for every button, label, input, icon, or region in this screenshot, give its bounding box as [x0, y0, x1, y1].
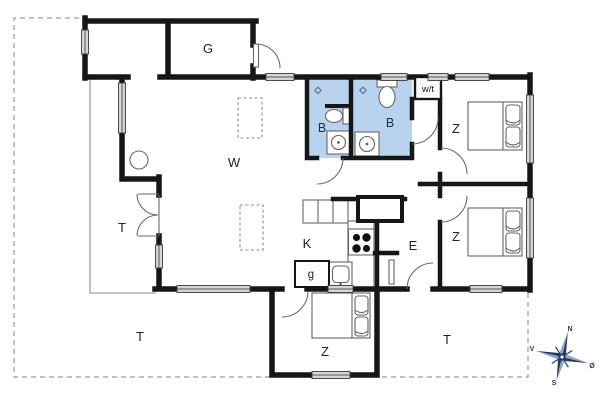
bed-sw	[312, 293, 370, 338]
wood-stove	[130, 151, 148, 169]
garage-door-leaf	[254, 44, 259, 67]
entry-closet-box	[358, 197, 402, 221]
room-label-utility: g	[308, 269, 314, 281]
shower-large-bath	[355, 132, 379, 156]
room-label-kitchen: K	[303, 236, 312, 251]
walls	[85, 18, 530, 375]
shower-small-bath	[327, 131, 350, 154]
compass-south-label: S	[552, 380, 557, 387]
skylight-2	[240, 205, 263, 250]
floor-plan-page: G W K E g w/t B B Z Z Z T T T	[0, 0, 600, 400]
room-label-tech: w/t	[421, 84, 435, 95]
room-label-bed-sw: Z	[321, 344, 329, 359]
bed-ne	[468, 102, 522, 150]
radiator	[389, 260, 394, 284]
bed-se	[468, 208, 522, 256]
skylight-1	[238, 98, 262, 138]
room-label-garage: G	[203, 41, 213, 56]
room-label-terrace-sw: T	[136, 329, 144, 344]
compass-east-label: Ø	[589, 363, 595, 370]
compass-west-label: V	[530, 346, 535, 353]
room-label-bath-large: B	[386, 116, 394, 130]
room-label-living: W	[228, 155, 241, 170]
compass-north-label: N	[567, 326, 572, 333]
room-label-bed-se: Z	[452, 229, 460, 244]
room-label-bath-small: B	[318, 121, 326, 135]
toilet-large-bath	[377, 80, 397, 108]
floor-plan-svg: G W K E g w/t B B Z Z Z T T T	[0, 0, 600, 400]
utility-sink	[329, 262, 352, 288]
room-label-bed-ne: Z	[452, 121, 460, 136]
room-label-terrace-se: T	[443, 332, 451, 347]
room-label-terrace-west: T	[118, 220, 126, 235]
room-label-entry: E	[409, 238, 418, 253]
kitchen-cabinets	[303, 200, 348, 223]
compass-rose: N V Ø S	[530, 326, 596, 387]
